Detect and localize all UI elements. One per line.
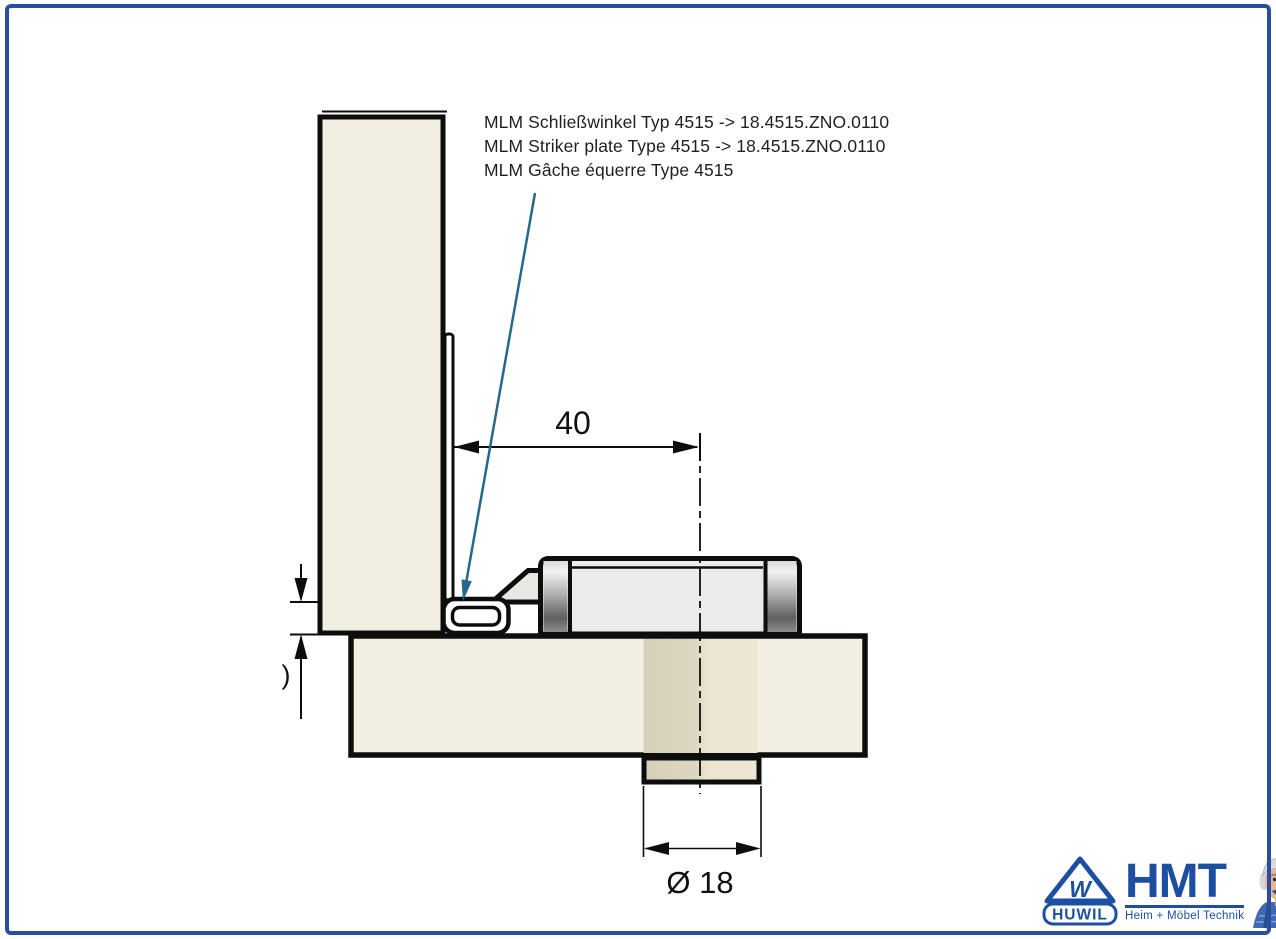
hmt-tagline: Heim + Möbel Technik bbox=[1125, 905, 1244, 922]
annotation-line-en: MLM Striker plate Type 4515 -> 18.4515.Z… bbox=[484, 134, 889, 158]
dimension-40-right-arrow bbox=[673, 441, 699, 454]
lock-body-right-pin bbox=[767, 561, 797, 632]
left-dimension: ) bbox=[282, 564, 323, 719]
lock-body-left-pin bbox=[544, 561, 568, 632]
leader-line bbox=[462, 193, 536, 601]
mascot-face-illustration bbox=[1251, 854, 1276, 930]
left-dimension-partial-label: ) bbox=[282, 660, 291, 690]
bottom-panel bbox=[351, 636, 865, 755]
striker-plate-hook bbox=[444, 599, 509, 633]
mascot-eyebrows bbox=[1270, 875, 1276, 876]
logo: W HUWIL HMT Heim + Möbel Technik bbox=[1042, 854, 1276, 930]
page: 40 Ø 18 ) MLM Schließwinkel Ty bbox=[0, 0, 1276, 939]
dimension-diameter-left-arrow bbox=[644, 842, 669, 855]
huwil-w-letter: W bbox=[1069, 876, 1093, 902]
left-dimension-upper-arrow bbox=[295, 578, 308, 602]
annotation-text: MLM Schließwinkel Typ 4515 -> 18.4515.ZN… bbox=[484, 110, 889, 182]
huwil-wordmark: HUWIL bbox=[1052, 907, 1108, 924]
striker-plate-leg bbox=[445, 334, 453, 600]
dimension-diameter-right-arrow bbox=[736, 842, 761, 855]
push-button-cylinder bbox=[644, 758, 759, 782]
dimension-diameter-label: Ø 18 bbox=[666, 865, 733, 900]
dimension-40-left-arrow bbox=[454, 441, 479, 454]
huwil-emblem: W HUWIL bbox=[1042, 856, 1118, 928]
dimension-40-label: 40 bbox=[555, 405, 591, 441]
hmt-block: HMT Heim + Möbel Technik bbox=[1125, 862, 1244, 921]
dimension-diameter: Ø 18 bbox=[644, 786, 762, 900]
left-dimension-lower-arrow bbox=[295, 635, 308, 660]
annotation-line-de: MLM Schließwinkel Typ 4515 -> 18.4515.ZN… bbox=[484, 110, 889, 134]
lock-body bbox=[541, 559, 800, 635]
hmt-wordmark: HMT bbox=[1125, 862, 1226, 901]
door-panel bbox=[320, 117, 443, 633]
annotation-line-fr: MLM Gâche équerre Type 4515 bbox=[484, 158, 889, 182]
